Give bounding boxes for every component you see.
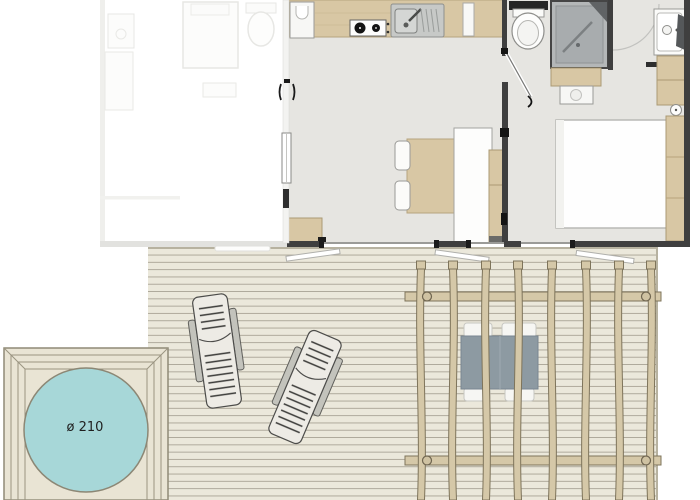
ghost-washbasin bbox=[108, 14, 134, 48]
tall-cabinet bbox=[454, 128, 492, 243]
bottom-wall-segment bbox=[434, 241, 471, 247]
wall-stub bbox=[646, 62, 658, 67]
double-bed bbox=[556, 120, 667, 228]
shelf-base bbox=[489, 236, 504, 243]
cabinet-knob-dot bbox=[675, 109, 677, 111]
neighbor-unit-ghost bbox=[100, 0, 288, 247]
burner-center bbox=[375, 27, 377, 29]
bottom-wall-segment bbox=[504, 241, 521, 247]
wall-jamb bbox=[466, 240, 471, 248]
washing-machine-door bbox=[571, 90, 582, 101]
lounger-backrest-slats bbox=[198, 302, 225, 331]
kitchen-sink bbox=[391, 4, 444, 37]
dining-chair bbox=[395, 141, 410, 170]
hot-tub-label: ø 210 bbox=[67, 420, 104, 435]
dining-chair bbox=[395, 181, 410, 210]
floor-plan-canvas: ø 210 bbox=[0, 0, 700, 500]
ghost-toilet bbox=[248, 12, 274, 46]
dining-table bbox=[407, 139, 458, 213]
washbasin-drain bbox=[663, 26, 672, 35]
ghost-bench bbox=[203, 83, 236, 97]
wardrobe bbox=[666, 116, 686, 241]
ghost-inner-wall bbox=[100, 196, 180, 200]
hinge-block bbox=[284, 79, 290, 83]
pergola-beam-top bbox=[405, 292, 661, 301]
wall-connector bbox=[501, 213, 507, 225]
shower bbox=[551, 1, 608, 68]
burner-center bbox=[359, 27, 361, 29]
bottom-wall-segment bbox=[570, 241, 690, 247]
shelf-column bbox=[489, 150, 504, 243]
toilet-bowl-inner bbox=[518, 21, 539, 46]
ghost-bed-pillow bbox=[191, 4, 229, 15]
right-wall bbox=[684, 0, 690, 247]
main-unit bbox=[280, 0, 691, 248]
corner-cabinet bbox=[288, 218, 322, 242]
wall-stub bbox=[283, 189, 289, 208]
hob-knob bbox=[387, 23, 390, 26]
hot-tub-platform: ø 210 bbox=[4, 348, 168, 500]
wall-jamb bbox=[319, 240, 324, 248]
sink-drain bbox=[404, 23, 409, 28]
washbasin-unit bbox=[654, 9, 687, 55]
wall-connector bbox=[500, 128, 509, 137]
floor-plan-drawing: ø 210 bbox=[0, 0, 700, 500]
small-basin bbox=[296, 6, 308, 19]
hob-knob bbox=[387, 31, 390, 34]
bottom-wall-segment bbox=[287, 241, 323, 247]
wall-jamb bbox=[570, 240, 575, 248]
wall-jamb bbox=[434, 240, 439, 248]
bathroom-wall-right bbox=[608, 0, 613, 70]
sink-bowl bbox=[395, 9, 417, 33]
door-hinge bbox=[501, 48, 508, 54]
ghost-cabinet bbox=[105, 52, 133, 110]
hinge-mark bbox=[280, 84, 282, 100]
ghost-left-wall bbox=[100, 0, 105, 247]
bed-edge-shade bbox=[556, 120, 564, 228]
bathroom-wall bbox=[502, 0, 507, 56]
counter-appliance-seam bbox=[463, 3, 474, 36]
ghost-door-leaf bbox=[215, 246, 270, 251]
bathroom-vanity bbox=[551, 68, 601, 86]
shower-drain bbox=[576, 43, 580, 47]
